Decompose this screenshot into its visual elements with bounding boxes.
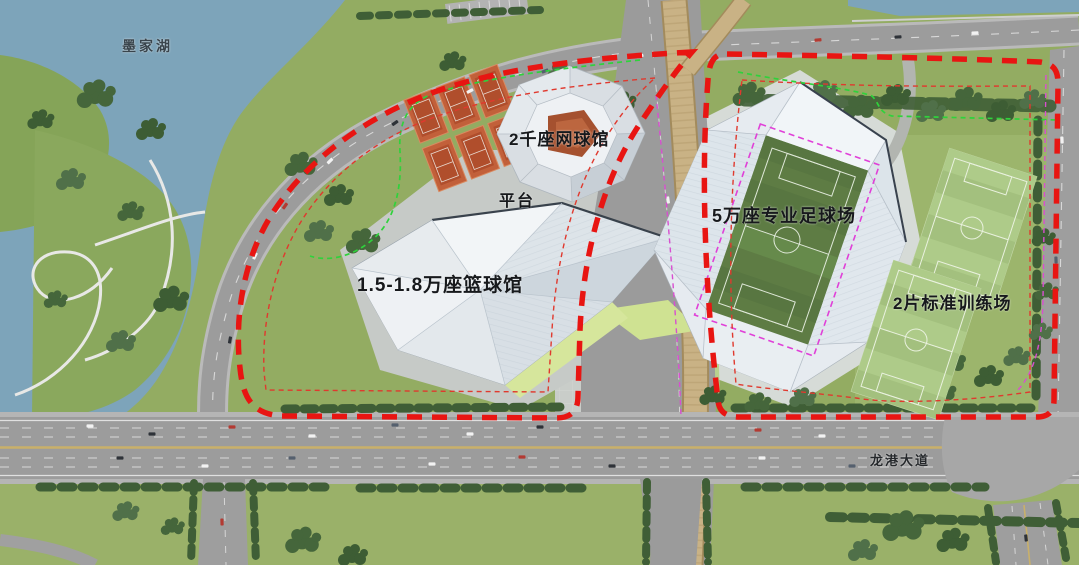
label-avenue: 龙港大道 [870, 450, 930, 469]
label-tennis-hall: 2千座网球馆 [509, 125, 609, 150]
label-basketball-arena: 1.5-1.8万座篮球馆 [357, 270, 523, 297]
label-training-fields: 2片标准训练场 [893, 289, 1011, 314]
master-plan-rendering: 墨家湖 2千座网球馆 平台 1.5-1.8万座篮球馆 5万座专业足球场 2片标准… [0, 0, 1079, 565]
label-platform: 平台 [499, 187, 535, 211]
site-plan-canvas [0, 0, 1079, 565]
label-lake: 墨家湖 [122, 36, 173, 56]
label-football-stadium: 5万座专业足球场 [712, 202, 856, 228]
longgang-avenue [0, 412, 1079, 484]
